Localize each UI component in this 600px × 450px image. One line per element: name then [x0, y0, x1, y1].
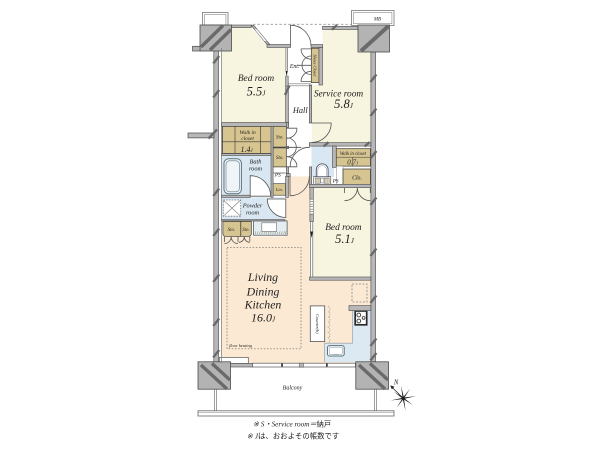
svg-text:※ Jは、おおよその帳数です: ※ Jは、おおよその帳数です: [247, 431, 340, 440]
svg-text:Living: Living: [247, 270, 278, 284]
svg-text:※ S・Service room＝納戸: ※ S・Service room＝納戸: [253, 420, 331, 429]
svg-text:Sto.: Sto.: [242, 228, 249, 233]
svg-text:Bed room: Bed room: [238, 74, 275, 84]
svg-text:Hall: Hall: [292, 106, 308, 115]
svg-text:Shoes Closet: Shoes Closet: [313, 54, 318, 77]
svg-text:Walk in: Walk in: [240, 130, 256, 136]
svg-text:Balcony: Balcony: [283, 386, 303, 392]
svg-text:floor heating: floor heating: [229, 343, 253, 348]
svg-text:Sto.: Sto.: [276, 156, 283, 161]
svg-text:closet: closet: [241, 136, 254, 142]
svg-text:Sto.: Sto.: [276, 135, 283, 140]
svg-text:0.7J: 0.7J: [347, 158, 359, 166]
svg-text:MB: MB: [373, 18, 381, 23]
svg-text:room: room: [246, 210, 260, 217]
svg-text:PS: PS: [274, 173, 281, 179]
svg-text:Counter(h): Counter(h): [315, 314, 320, 334]
svg-text:N: N: [393, 380, 399, 387]
svg-text:Ent.: Ent.: [289, 64, 300, 70]
svg-text:Clo.: Clo.: [352, 176, 362, 182]
svg-text:Dining: Dining: [246, 284, 280, 298]
svg-text:Bath: Bath: [250, 158, 262, 165]
svg-text:Walk in closet: Walk in closet: [340, 152, 367, 157]
svg-text:Sto.: Sto.: [228, 228, 235, 233]
svg-text:room: room: [249, 166, 263, 173]
svg-text:Lin.: Lin.: [275, 187, 283, 192]
svg-text:Kitchen: Kitchen: [244, 298, 282, 312]
svg-text:PS: PS: [332, 179, 339, 185]
svg-text:Powder: Powder: [242, 203, 263, 210]
